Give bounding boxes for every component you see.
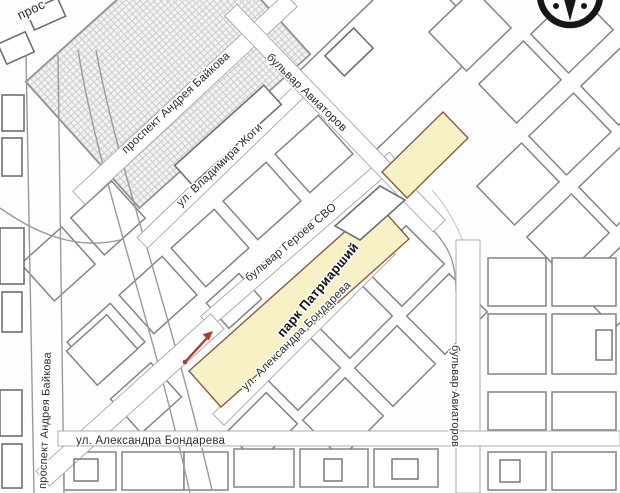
building — [0, 390, 22, 436]
compass-dot-east — [581, 3, 587, 9]
building — [2, 138, 22, 176]
city-block — [184, 452, 228, 490]
city-block — [552, 452, 616, 490]
city-block — [223, 162, 301, 239]
city-block — [488, 314, 546, 374]
building — [0, 32, 34, 64]
map-canvas[interactable]: прос проспект Андрея Байкова ул. Владими… — [0, 0, 620, 493]
city-block — [552, 258, 616, 306]
building — [2, 95, 24, 131]
city-blocks-layer — [0, 0, 620, 493]
city-block — [488, 392, 546, 430]
label-bulvar-aviatorov-vertical: бульвар Авиаторов — [449, 345, 461, 447]
building — [0, 228, 24, 284]
building — [2, 444, 22, 488]
compass-needle-tip-dot — [568, 24, 572, 28]
compass-dot-west — [553, 3, 559, 9]
city-block — [234, 449, 294, 487]
map-viewport[interactable]: прос проспект Андрея Байкова ул. Владими… — [0, 0, 620, 493]
city-block — [488, 452, 546, 490]
city-block — [552, 314, 616, 374]
city-block — [552, 392, 616, 430]
label-bondareva-horizontal: ул. Александра Бондарева — [76, 435, 225, 447]
building — [2, 292, 22, 332]
city-block — [374, 449, 438, 487]
city-block — [488, 258, 546, 306]
city-block — [122, 452, 184, 490]
